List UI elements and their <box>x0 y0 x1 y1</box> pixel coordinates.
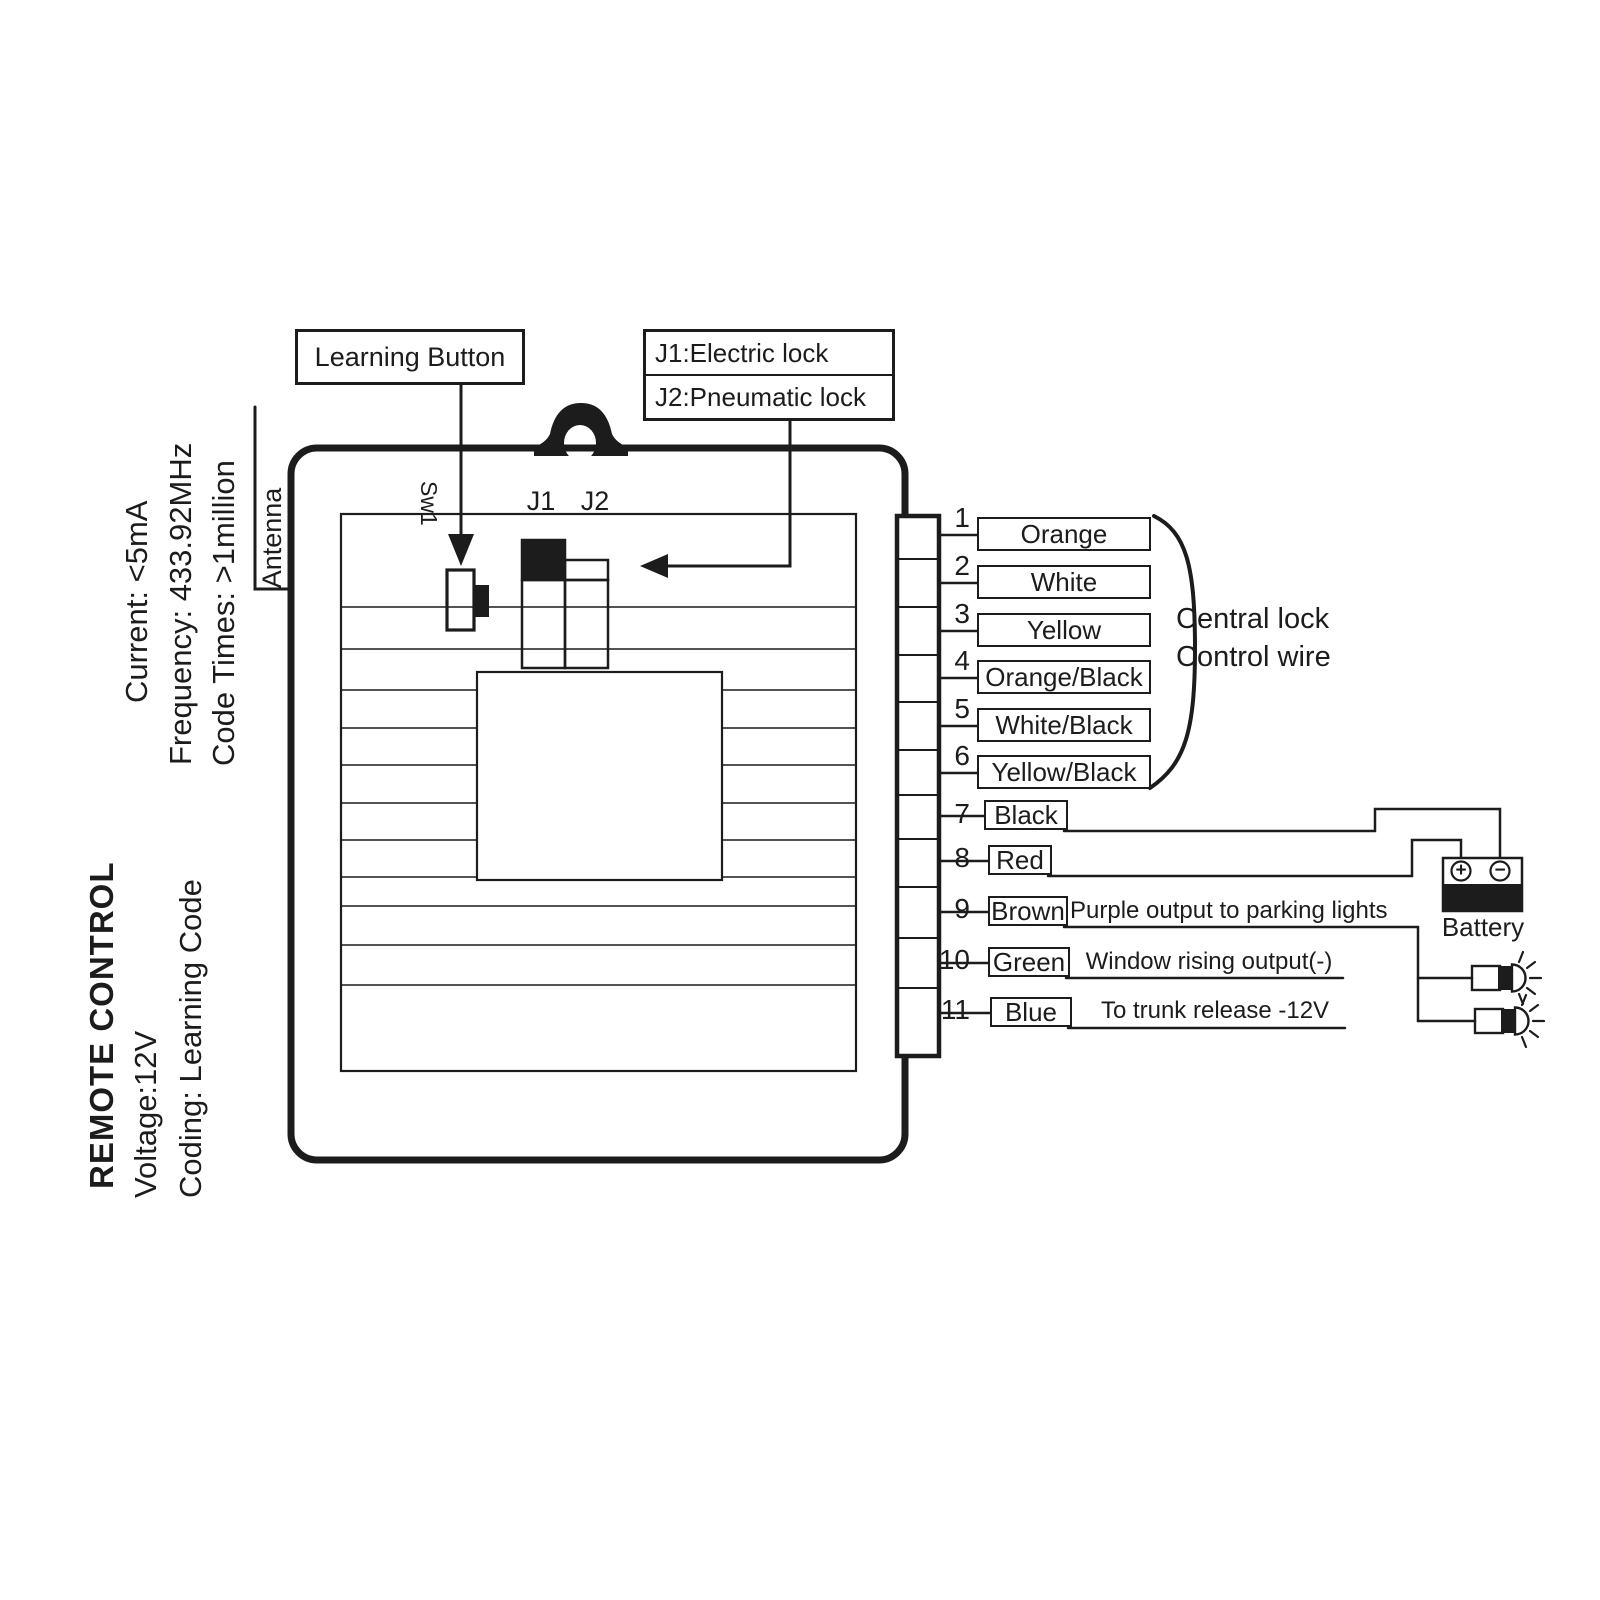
sw1-label: Sw1 <box>417 481 441 543</box>
spec-current: Current: <5mA <box>119 363 155 703</box>
group-label-line2: Control wire <box>1176 638 1331 676</box>
wire-color-box: Green <box>988 947 1070 977</box>
learning-button-callout: Learning Button <box>295 329 525 385</box>
wire-color-box: Yellow/Black <box>977 755 1151 789</box>
wire-black-to-battery <box>1064 809 1500 858</box>
wire-number: 2 <box>930 551 970 581</box>
bulb-2-rays <box>1522 995 1544 1047</box>
antenna-label: Antenna <box>257 438 287 638</box>
jumper-legend-line2: J2:Pneumatic lock <box>646 376 892 418</box>
wiring-diagram: Current: <5mA Frequency: 433.92MHz Code … <box>0 0 1600 1600</box>
bulb-2 <box>1475 995 1544 1047</box>
spec-code-times: Code Times: >1million <box>206 426 242 766</box>
wire-number: 10 <box>908 945 970 975</box>
edge-connector <box>897 516 939 1056</box>
wire-number: 8 <box>908 843 970 873</box>
battery-plus-symbol: + <box>1451 860 1471 882</box>
wire-color-box: Orange <box>977 517 1151 551</box>
sw1-actuator <box>474 585 489 617</box>
wire-number: 5 <box>930 694 970 724</box>
spec-voltage: Voltage:12V <box>128 858 164 1198</box>
diagram-linework <box>0 0 1600 1600</box>
j2-label: J2 <box>570 486 620 517</box>
wire-number: 9 <box>908 894 970 924</box>
wire-number: 3 <box>930 599 970 629</box>
battery-label: Battery <box>1425 912 1541 943</box>
ic-chip <box>477 672 722 880</box>
battery-minus-symbol: − <box>1490 860 1510 882</box>
bulb-1-rays <box>1519 952 1541 1004</box>
wire-color-box: Black <box>984 800 1068 830</box>
group-label-line1: Central lock <box>1176 600 1331 638</box>
spec-frequency: Frequency: 433.92MHz <box>163 425 199 765</box>
jumper-legend-callout: J1:Electric lock J2:Pneumatic lock <box>643 329 895 421</box>
wire-number: 1 <box>930 503 970 533</box>
wire-color-box: White/Black <box>977 708 1151 742</box>
wire-color-box: Yellow <box>977 613 1151 647</box>
spec-title: REMOTE CONTROL <box>84 849 120 1189</box>
note-trunk-release: To trunk release -12V <box>1095 997 1335 1025</box>
central-lock-group-label: Central lock Control wire <box>1176 600 1331 676</box>
j1-label: J1 <box>516 486 566 517</box>
bulb-1 <box>1472 952 1541 1004</box>
wire-color-box: Orange/Black <box>977 660 1151 694</box>
note-window-rising: Window rising output(-) <box>1078 948 1340 976</box>
wire-color-box: White <box>977 565 1151 599</box>
jumper-legend-line1: J1:Electric lock <box>646 332 892 376</box>
wire-color-box: Brown <box>988 896 1068 926</box>
note-parking-lights: Purple output to parking lights <box>1070 897 1422 925</box>
wire-color-box: Blue <box>990 997 1072 1027</box>
wire-number: 4 <box>930 646 970 676</box>
jumper-j1-cap <box>522 540 565 580</box>
battery-base <box>1444 884 1521 910</box>
wire-number: 7 <box>908 799 970 829</box>
wire-color-box: Red <box>988 845 1052 875</box>
spec-coding: Coding: Learning Code <box>173 858 209 1198</box>
wire-number: 6 <box>930 741 970 771</box>
wire-number: 11 <box>908 995 970 1025</box>
wire-red-to-battery <box>1048 840 1461 876</box>
